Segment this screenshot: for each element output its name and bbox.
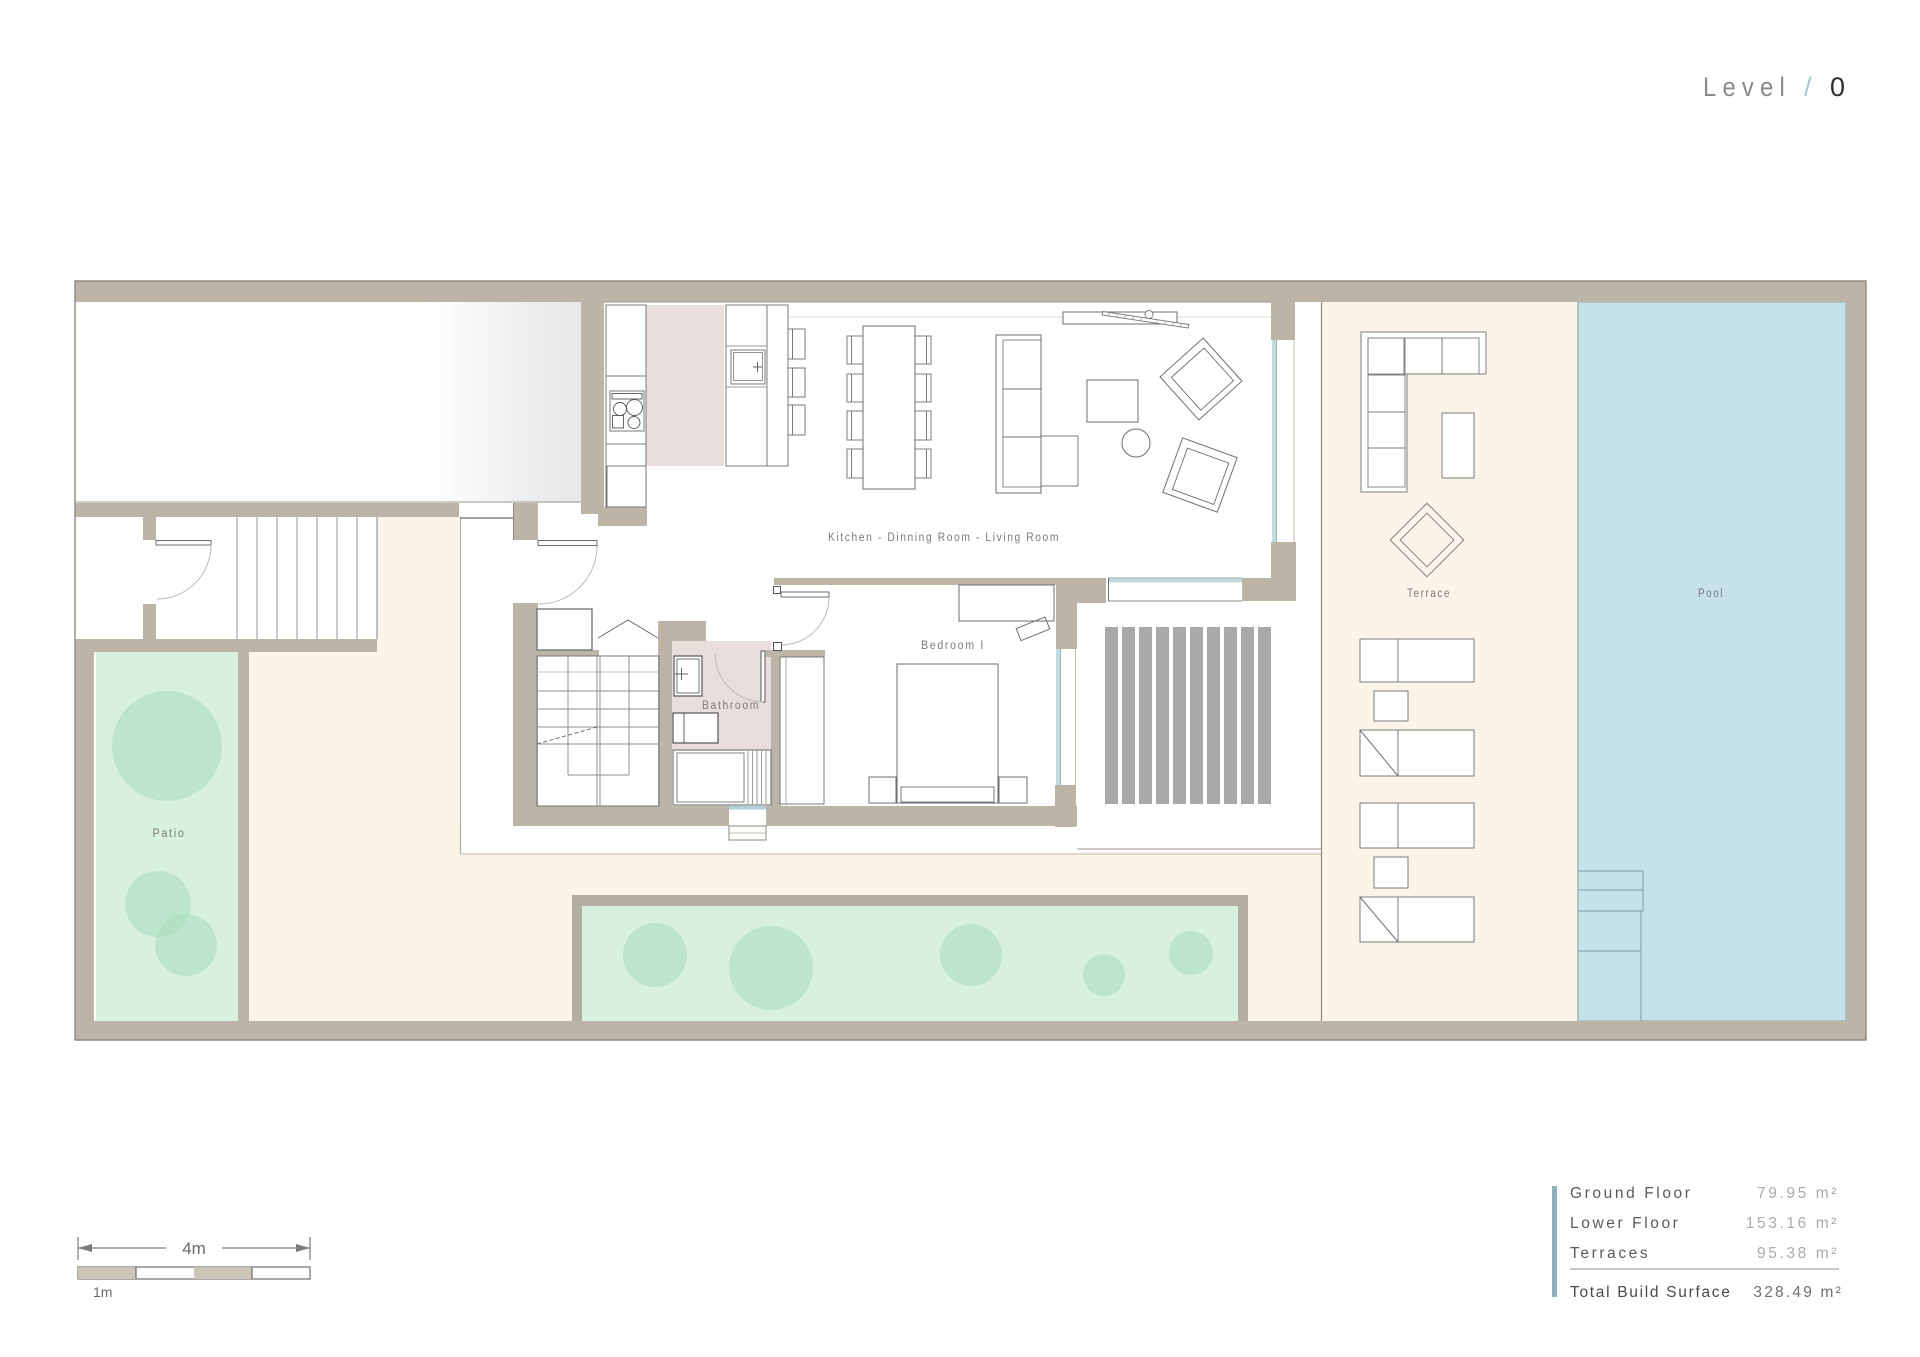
svg-text:Ground Floor: Ground Floor [1570,1185,1693,1202]
svg-text:Terrace: Terrace [1407,588,1451,600]
svg-text:Total Build Surface: Total Build Surface [1570,1284,1732,1301]
svg-text:Bedroom I: Bedroom I [921,640,985,652]
svg-text:153.16 m²: 153.16 m² [1746,1215,1839,1232]
svg-text:95.38 m²: 95.38 m² [1757,1245,1839,1262]
svg-text:328.49 m²: 328.49 m² [1753,1284,1843,1301]
svg-text:Level: Level [1703,72,1791,102]
svg-text:Terraces: Terraces [1570,1245,1650,1262]
svg-text:79.95 m²: 79.95 m² [1757,1185,1839,1202]
svg-text:/: / [1804,72,1812,102]
svg-text:1m: 1m [93,1284,112,1300]
svg-text:0: 0 [1830,72,1845,102]
svg-text:Lower Floor: Lower Floor [1570,1215,1680,1232]
svg-text:Patio: Patio [153,828,186,840]
svg-text:Bathroom: Bathroom [702,700,760,712]
svg-text:4m: 4m [182,1239,206,1258]
svg-text:Kitchen - Dinning Room - Livin: Kitchen - Dinning Room - Living Room [828,532,1060,544]
svg-text:Pool: Pool [1698,588,1724,600]
